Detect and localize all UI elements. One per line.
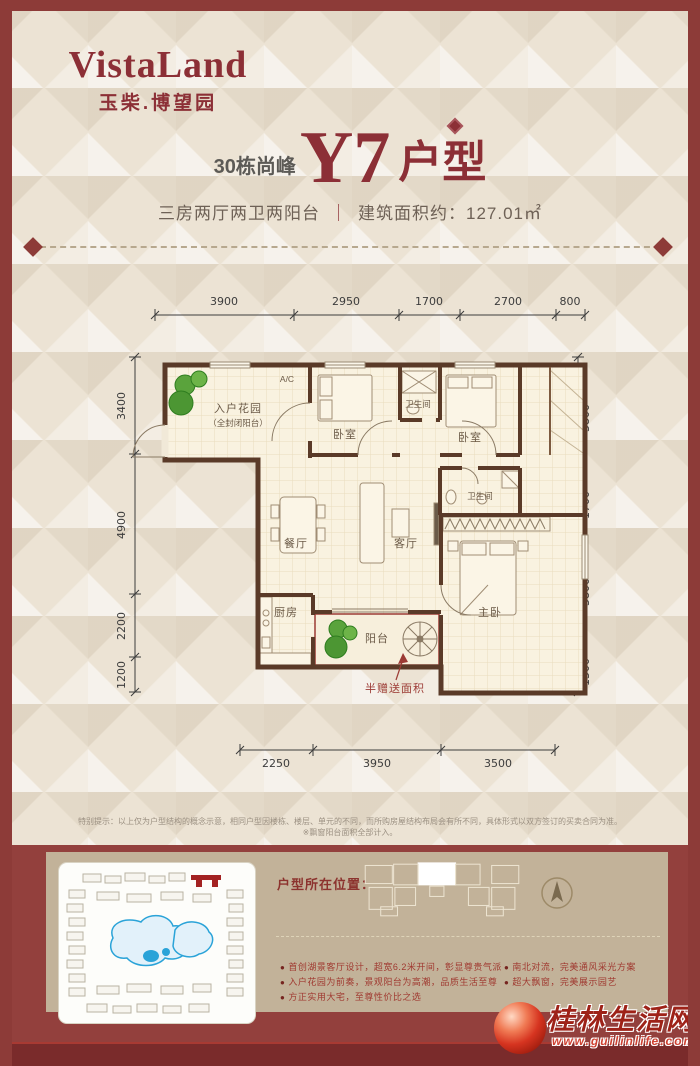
selling-point-text: 首创湖景客厅设计，超宽6.2米开间，彰显尊贵气派 [288, 962, 502, 972]
room-label-bedroom2: 卧室 [458, 430, 482, 444]
svg-text:2700: 2700 [494, 295, 522, 308]
dimension-labels-top: 3900 2950 1700 2700 800 [210, 295, 581, 308]
bullet-icon: ● [504, 978, 509, 987]
watermark-site-name: 桂林生活网 [546, 998, 696, 1038]
footer-dashed-divider [276, 936, 660, 937]
room-label-balcony: 阳台 [365, 631, 389, 645]
selling-point: ●方正实用大宅，至尊性价比之选 [280, 990, 421, 1003]
disclaimer-line2: ※飘窗阳台面积全部计入。 [70, 827, 630, 838]
svg-text:800: 800 [560, 295, 581, 308]
selling-point: ●超大飘窗，完美展示园艺 [504, 975, 617, 988]
selling-point-text: 超大飘窗，完美展示园艺 [512, 977, 617, 987]
room-label-ac: A/C [280, 374, 294, 384]
svg-text:4900: 4900 [115, 511, 128, 539]
brand-logo: VistaLand 玉柴.博望园 [48, 46, 268, 115]
brand-logo-cn: 玉柴.博望园 [48, 88, 268, 115]
svg-text:2250: 2250 [262, 757, 290, 770]
dashed-divider [40, 246, 660, 248]
floor-plan: 3900 2950 1700 2700 800 3400 4900 2200 1… [110, 285, 590, 810]
svg-text:3400: 3400 [115, 392, 128, 420]
svg-text:3500: 3500 [484, 757, 512, 770]
unit-position-diagram [342, 848, 542, 932]
unit-subtitle: 三房两厅两卫两阳台｜建筑面积约：127.01㎡ [0, 199, 700, 224]
unit-type-label: 户型 [398, 141, 486, 185]
room-label-bedroom1: 卧室 [333, 427, 357, 441]
svg-text:2950: 2950 [332, 295, 360, 308]
watermark-sphere-icon [494, 1002, 546, 1054]
selling-point-text: 南北对流，完美通风采光方案 [512, 962, 636, 972]
selling-point-text: 方正实用大宅，至尊性价比之选 [288, 992, 421, 1002]
frame-top [0, 0, 700, 11]
disclaimer-line1: 特别提示：以上仅为户型结构的概念示意，相同户型因楼栋、楼层、单元的不同，而所购房… [70, 816, 630, 827]
bullet-icon: ● [280, 963, 285, 972]
highlighted-unit [418, 863, 455, 885]
brand-logo-en: VistaLand [48, 46, 268, 84]
selling-point: ●南北对流，完美通风采光方案 [504, 960, 636, 973]
floor-area: 建筑面积约：127.01㎡ [358, 204, 542, 223]
compass-icon [540, 876, 574, 910]
poster-page: VistaLand 玉柴.博望园 30栋尚峰 Y7 户型 三房两厅两卫两阳台｜建… [0, 0, 700, 1066]
room-label-master: 主卧 [478, 606, 502, 619]
diamond-ornament-icon [653, 237, 673, 257]
svg-text:1700: 1700 [415, 295, 443, 308]
frame-right [688, 0, 700, 1066]
selling-point: ●入户花园为前奏，景观阳台为高潮，品质生活至尊 [280, 975, 497, 988]
bullet-icon: ● [280, 978, 285, 987]
svg-text:1200: 1200 [115, 661, 128, 689]
spiral-stair-icon [403, 622, 437, 656]
svg-text:3950: 3950 [363, 757, 391, 770]
dimension-labels-bottom: 2250 3950 3500 [262, 757, 512, 770]
unit-code: Y7 [300, 128, 390, 189]
diamond-ornament-icon [23, 237, 43, 257]
site-plan-map [63, 868, 253, 1018]
room-label-kitchen: 厨房 [274, 606, 298, 619]
svg-text:半赠送面积: 半赠送面积 [365, 681, 425, 695]
unit-title: 30栋尚峰 Y7 户型 [0, 128, 700, 189]
frame-left [0, 0, 12, 1066]
room-label-entry-garden: 入户花园 [214, 401, 262, 415]
gate-icon [191, 875, 221, 887]
svg-text:3900: 3900 [210, 295, 238, 308]
room-label-bath2: 卫生间 [467, 491, 493, 501]
selling-point-text: 入户花园为前奏，景观阳台为高潮，品质生活至尊 [288, 977, 497, 987]
block-name: 30栋尚峰 [214, 150, 296, 179]
subtitle-divider: ｜ [320, 204, 358, 223]
svg-text:2200: 2200 [115, 612, 128, 640]
bullet-icon: ● [504, 963, 509, 972]
selling-point: ●首创湖景客厅设计，超宽6.2米开间，彰显尊贵气派 [280, 960, 502, 973]
dimension-labels-left: 3400 4900 2200 1200 [115, 392, 128, 689]
bullet-icon: ● [280, 993, 285, 1002]
room-config: 三房两厅两卫两阳台 [158, 204, 320, 223]
room-label-bath1: 卫生间 [405, 399, 431, 409]
site-lake [111, 916, 213, 966]
room-label-entry-garden-note: （全封闭阳台） [208, 418, 268, 428]
disclaimer: 特别提示：以上仅为户型结构的概念示意，相同户型因楼栋、楼层、单元的不同，而所购房… [70, 816, 630, 838]
room-label-dining: 餐厅 [284, 536, 308, 550]
site-watermark: 桂林生活网 www.guilinlife.com [488, 996, 700, 1064]
room-label-living: 客厅 [394, 536, 418, 550]
site-plan-card [58, 862, 256, 1024]
watermark-site-url: www.guilinlife.com [552, 1034, 696, 1048]
